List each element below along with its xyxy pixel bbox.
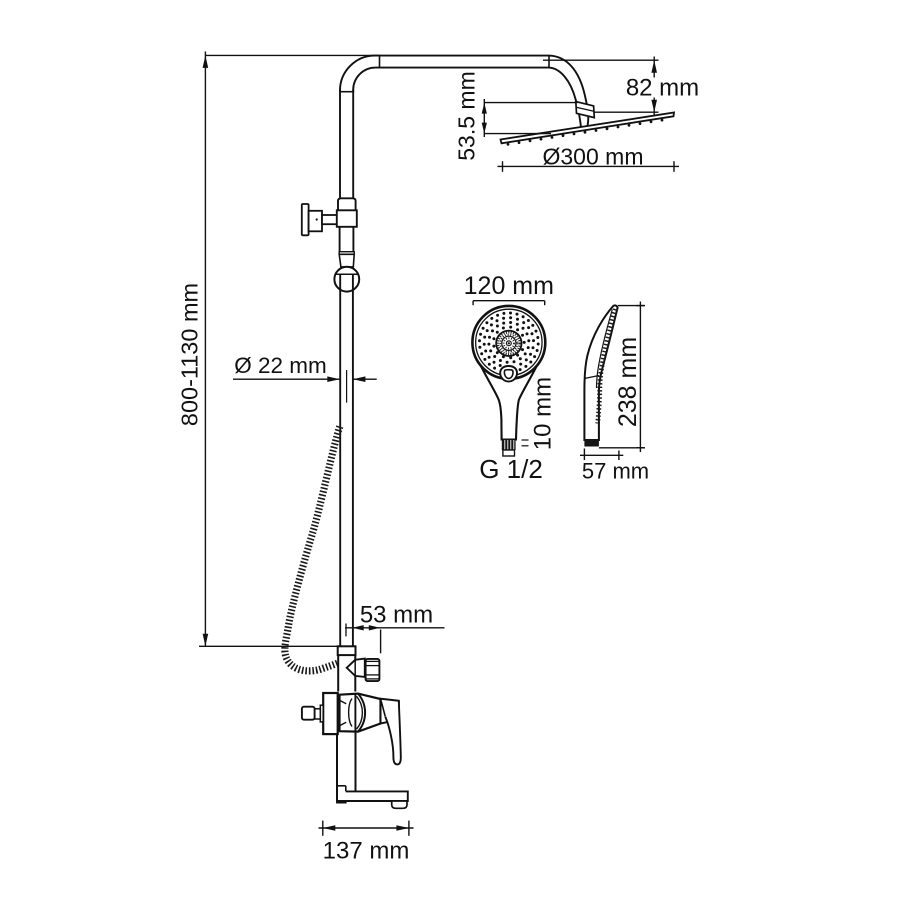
- svg-text:53.5 mm: 53.5 mm: [454, 71, 480, 160]
- svg-text:53 mm: 53 mm: [360, 602, 433, 629]
- svg-text:238 mm: 238 mm: [614, 337, 642, 427]
- svg-text:120 mm: 120 mm: [464, 272, 554, 300]
- svg-text:137 mm: 137 mm: [323, 838, 410, 865]
- svg-text:57 mm: 57 mm: [582, 459, 649, 484]
- svg-text:G 1/2: G 1/2: [479, 454, 543, 484]
- svg-text:10 mm: 10 mm: [530, 377, 557, 450]
- svg-text:Ø 22 mm: Ø 22 mm: [234, 353, 327, 378]
- svg-text:82 mm: 82 mm: [626, 75, 699, 102]
- svg-text:800-1130 mm: 800-1130 mm: [177, 283, 203, 426]
- svg-text:Ø300 mm: Ø300 mm: [543, 144, 644, 170]
